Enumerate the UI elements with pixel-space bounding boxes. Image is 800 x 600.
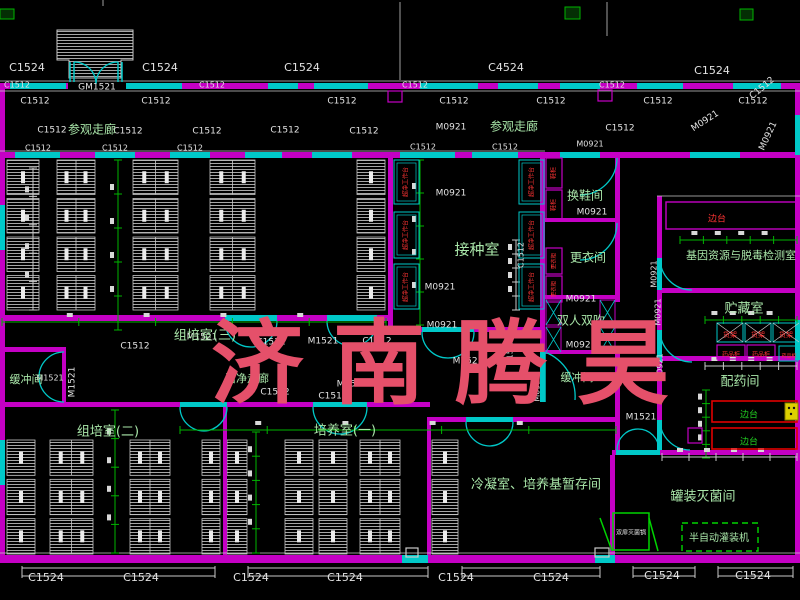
wall-segment (388, 157, 393, 330)
axis-marker (740, 9, 753, 20)
dim-mark (107, 457, 111, 463)
rack-tag (59, 491, 63, 503)
wall-segment (0, 347, 64, 352)
code-label: M0921 (566, 341, 597, 351)
code-label: M0921 (436, 189, 467, 199)
rack-tag (158, 452, 162, 464)
window-segment (690, 152, 740, 158)
rack-tag (209, 491, 213, 503)
code-label: C1524 (644, 569, 680, 582)
rack-tag (209, 530, 213, 542)
rack-tag (165, 287, 169, 299)
code-label: C1524 (28, 571, 64, 584)
rack-tag (235, 452, 239, 464)
dim-mark (67, 313, 73, 317)
window-segment (657, 420, 662, 450)
code-label: M0921 (533, 374, 542, 401)
sink-dot (793, 407, 795, 409)
rack-tag (368, 452, 372, 464)
rack-tag (209, 452, 213, 464)
code-label: C1512 (536, 97, 565, 107)
room-label: 缓冲间 (10, 372, 43, 386)
dim-mark (248, 495, 252, 501)
room-label: 贮藏室 (724, 301, 763, 317)
dim-mark (110, 286, 114, 292)
code-label: C1512 (643, 97, 672, 107)
rack-tag (138, 530, 142, 542)
window-segment (466, 417, 513, 422)
dim-mark (517, 421, 523, 425)
rack-tag (242, 287, 246, 299)
equipment-label: 超净工作台 (402, 272, 410, 302)
code-label: C1512 (113, 127, 142, 137)
wall-segment (615, 157, 620, 302)
code-label: C1524 (327, 571, 363, 584)
window-segment (95, 152, 135, 158)
code-label: C1512 (141, 97, 170, 107)
dim-mark (762, 231, 768, 235)
axis-marker (565, 7, 580, 19)
dim-mark (412, 249, 416, 255)
dim-mark (508, 286, 512, 292)
code-label: M1521 (626, 413, 657, 423)
rack-tag (142, 287, 146, 299)
rack-tag (21, 210, 25, 222)
code-label: C1512 (402, 81, 428, 90)
room-label: 配药间 (720, 375, 759, 390)
equipment-label: 药品柜 (781, 353, 796, 360)
wall-segment (0, 555, 800, 563)
code-label: M1521 (337, 380, 368, 390)
rack-tag (80, 491, 84, 503)
dim-mark (110, 252, 114, 258)
window-segment (595, 555, 615, 563)
code-label: M0921 (654, 298, 663, 325)
dim-mark (704, 448, 710, 452)
sink-dot (790, 413, 792, 415)
dim-mark (698, 407, 702, 413)
dim-mark (248, 446, 252, 452)
code-label: C1512 (517, 242, 526, 268)
door-arc (660, 420, 690, 450)
rack-tag (19, 491, 23, 503)
rack-tag (19, 530, 23, 542)
rack-tag (158, 491, 162, 503)
rack-tag (297, 491, 301, 503)
rack-tag (21, 171, 25, 183)
room-label: 参观走廊 (68, 122, 116, 137)
dim-mark (508, 244, 512, 250)
dim-mark (677, 448, 683, 452)
rack-tag (368, 491, 372, 503)
dim-mark (767, 311, 773, 315)
room-label: 冷凝室、培养基暂存间 (471, 477, 601, 493)
code-label: C1512 (605, 124, 634, 134)
rack-tag (242, 248, 246, 260)
equipment-label: 药品柜 (752, 351, 770, 359)
dim-mark (248, 519, 252, 525)
room-label: 参观走廊 (490, 119, 538, 134)
rack-tag (80, 530, 84, 542)
equipment-label: 双扉灭菌锅 (616, 529, 646, 537)
equipment-label: 超净工作台 (528, 272, 536, 302)
rack-tag (388, 452, 392, 464)
window-segment (313, 402, 367, 407)
dim-mark (25, 186, 29, 192)
room-label: 组培室(三) (174, 328, 236, 344)
rack-tag (219, 287, 223, 299)
code-label: C1524 (735, 569, 771, 582)
window-segment (170, 152, 210, 158)
dim-mark (715, 231, 721, 235)
dim-mark (220, 313, 226, 317)
window-segment (637, 83, 683, 89)
rack-tag (219, 210, 223, 222)
code-label: M0921 (425, 283, 456, 293)
dim-mark (508, 258, 512, 264)
dim-mark (738, 231, 744, 235)
equipment-label: 超净工作台 (402, 220, 410, 250)
door-arc (180, 407, 204, 431)
window-segment (327, 315, 377, 321)
code-label: C1512 (37, 126, 66, 136)
rack-tag (142, 248, 146, 260)
window-segment (472, 152, 518, 158)
dim-mark (110, 218, 114, 224)
rack-tag (142, 171, 146, 183)
axis-marker (0, 9, 14, 19)
rack-tag (331, 452, 335, 464)
window-segment (15, 152, 60, 158)
dim-mark (255, 421, 261, 425)
rack-tag (84, 248, 88, 260)
dim-mark (412, 282, 416, 288)
window-segment (245, 152, 282, 158)
code-label: C1512 (256, 338, 285, 348)
rack-tag (242, 210, 246, 222)
window-segment (560, 152, 600, 158)
rack-tag (84, 210, 88, 222)
code-label: C1512 (439, 97, 468, 107)
code-label: C1524 (284, 61, 320, 74)
sink-icon (785, 403, 798, 420)
rack-tag (331, 530, 335, 542)
code-label: C1524 (533, 571, 569, 584)
room-label: 接种室 (454, 241, 499, 259)
code-label: C1524 (123, 571, 159, 584)
room-label: 洁净走廊 (225, 371, 269, 385)
rack-tag (165, 248, 169, 260)
rack-tag (21, 248, 25, 260)
wall-segment (427, 422, 431, 555)
code-label: C1512 (25, 144, 51, 153)
code-label: C1512 (177, 144, 203, 153)
cad-floorplan-screenshot: C1524C1524C1524C4524C1524C1512GM1521C151… (0, 0, 800, 600)
equipment-label: 鞋柜 (550, 199, 558, 211)
equipment-label: 货架 (779, 330, 793, 339)
rack-tag (219, 171, 223, 183)
door-sill (388, 91, 402, 102)
code-label: M0921 (650, 260, 659, 287)
rack-tag (331, 491, 335, 503)
rack-tag (388, 530, 392, 542)
window-segment (268, 83, 298, 89)
code-label: C1524 (233, 571, 269, 584)
dim-mark (698, 421, 702, 427)
window-segment (126, 83, 182, 89)
code-label: C1512 (20, 97, 49, 107)
dim-mark (508, 272, 512, 278)
code-label: C1512 (260, 388, 289, 398)
rack-tag (21, 287, 25, 299)
code-label: M1521 (68, 367, 78, 398)
window-segment (400, 152, 455, 158)
code-label: M0921 (576, 140, 603, 149)
code-label: M0921 (427, 321, 458, 331)
code-label: C1524 (694, 64, 730, 77)
rack-tag (165, 171, 169, 183)
code-label: C1512 (4, 81, 30, 90)
code-label: M0921 (436, 123, 467, 133)
equipment-label: 超净工作台 (528, 167, 536, 197)
door-arc (466, 422, 490, 446)
dim-mark (25, 215, 29, 221)
rack-tag (65, 287, 69, 299)
door-arc (660, 258, 692, 290)
window-segment (498, 83, 538, 89)
window-segment (314, 83, 368, 89)
rack-tag (138, 452, 142, 464)
window-segment (0, 440, 5, 485)
door-sill (598, 90, 612, 101)
equipment-label: 边台 (708, 213, 726, 225)
window-segment (560, 83, 600, 89)
code-label: C1512 (199, 81, 225, 90)
dim-mark (711, 311, 717, 315)
room-label: 双人双吹 (557, 314, 605, 328)
dim-mark (430, 421, 436, 425)
rack-tag (165, 210, 169, 222)
equipment-label: 鞋柜 (550, 167, 558, 179)
rack-tag (158, 530, 162, 542)
rack-tag (443, 530, 447, 542)
code-label: C1512 (120, 342, 149, 352)
floorplan-canvas: C1524C1524C1524C4524C1524C1512GM1521C151… (0, 0, 800, 600)
rack-tag (235, 491, 239, 503)
rack-tag (297, 530, 301, 542)
door-arc (490, 422, 513, 446)
code-label: GM1521 (78, 83, 116, 93)
code-label: M1521 (453, 357, 484, 367)
equipment-label: 药品柜 (722, 351, 740, 359)
code-label: C1512 (410, 143, 436, 152)
room-label: 缓冲间 (561, 370, 594, 384)
rack-tag (59, 452, 63, 464)
rack-tag (84, 171, 88, 183)
dim-mark (25, 243, 29, 249)
dim-mark (107, 514, 111, 520)
rack-tag (443, 452, 447, 464)
code-label: M0921 (577, 208, 608, 218)
code-label: C1512 (192, 127, 221, 137)
window-segment (795, 115, 800, 155)
dim-mark (144, 313, 150, 317)
code-label: C1524 (142, 61, 178, 74)
dim-mark (248, 470, 252, 476)
equipment-label: 边台 (740, 409, 758, 421)
rack-tag (138, 491, 142, 503)
rack-tag (19, 452, 23, 464)
rack-tag (443, 491, 447, 503)
dim-mark (412, 183, 416, 189)
door-arc (448, 332, 474, 358)
sink-dot (788, 407, 790, 409)
dim-mark (110, 184, 114, 190)
wall-segment (223, 407, 227, 555)
room-label: 组培室(二) (77, 424, 139, 440)
wall-segment (427, 417, 620, 422)
door-arc (422, 332, 448, 358)
code-label: C1512 (738, 97, 767, 107)
code-label: M0921 (757, 120, 779, 152)
code-label: M0921 (656, 353, 665, 380)
code-label: C4524 (488, 61, 524, 74)
dim-mark (25, 272, 29, 278)
room-label: 换鞋间 (567, 188, 603, 203)
side-bench (666, 202, 796, 229)
rack-tag (84, 287, 88, 299)
code-label: C1512 (506, 339, 515, 365)
code-label: C1512 (599, 81, 625, 90)
room-label: 基因资源与脱毒检测室 (686, 248, 796, 262)
rack-tag (297, 452, 301, 464)
rack-tag (242, 171, 246, 183)
equipment-label: 超净工作台 (402, 167, 410, 197)
rack-tag (59, 530, 63, 542)
code-label: C1512 (327, 97, 356, 107)
equipment-label: 边台 (740, 436, 758, 448)
rack-tag (219, 248, 223, 260)
code-label: M0921 (566, 295, 597, 305)
window-segment (312, 152, 352, 158)
rack-tag (369, 210, 373, 222)
equipment-label: 货架 (723, 330, 737, 339)
code-label: M0921 (690, 109, 721, 134)
room-label: 半自动灌装机 (689, 531, 749, 544)
equipment-label: 超净工作台 (528, 220, 536, 250)
rack-tag (388, 491, 392, 503)
door-arc (617, 429, 638, 450)
room-label: 培养室(一) (314, 423, 376, 439)
wall-segment (657, 288, 800, 293)
rack-tag (369, 287, 373, 299)
room-label: 更衣间 (570, 250, 606, 265)
code-label: C1512 (492, 143, 518, 152)
rack-tag (369, 248, 373, 260)
equipment-label: 更衣柜 (550, 252, 558, 269)
dim-mark (698, 394, 702, 400)
code-label: C1512 (270, 126, 299, 136)
dim-mark (107, 486, 111, 492)
code-label: M1521 (308, 337, 339, 347)
equipment-label: 货架 (751, 330, 765, 339)
dim-mark (297, 313, 303, 317)
window-segment (0, 205, 5, 250)
rack-tag (80, 452, 84, 464)
equipment-label: 更衣柜 (550, 280, 558, 297)
code-label: C1524 (438, 571, 474, 584)
dim-mark (412, 216, 416, 222)
door-arc (638, 429, 659, 450)
rack-tag (368, 530, 372, 542)
window-segment (180, 402, 227, 407)
room-label: 罐装灭菌间 (670, 490, 735, 505)
rack-tag (235, 530, 239, 542)
code-label: C1512 (102, 144, 128, 153)
rack-tag (65, 210, 69, 222)
rack-tag (65, 248, 69, 260)
sterilizer-arm (649, 518, 658, 551)
code-label: C1512 (318, 392, 347, 402)
window-segment (420, 83, 478, 89)
code-label: C1512 (349, 127, 378, 137)
rack-tag (142, 210, 146, 222)
rack-tag (65, 171, 69, 183)
code-label: C1512 (362, 337, 391, 347)
window-segment (616, 450, 660, 455)
rack-tag (369, 171, 373, 183)
code-label: C1524 (9, 61, 45, 74)
dim-mark (691, 231, 697, 235)
